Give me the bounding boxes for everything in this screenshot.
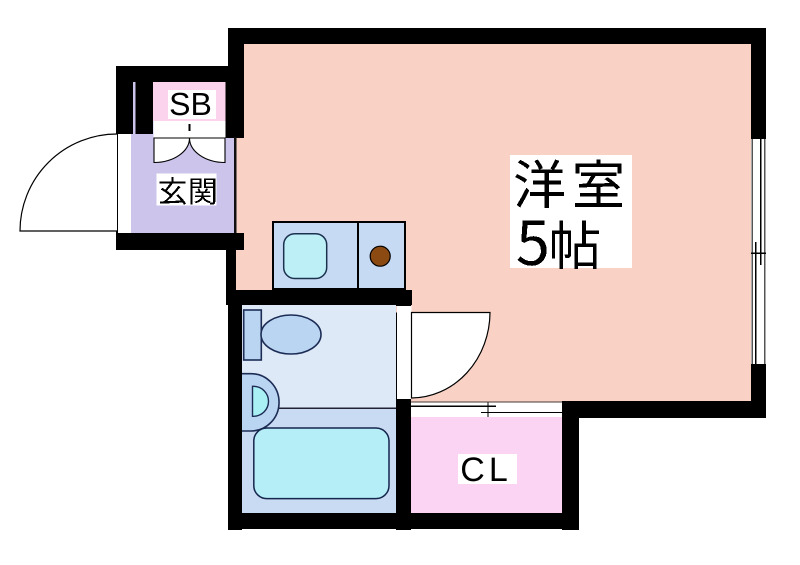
svg-text:CL: CL bbox=[460, 451, 511, 489]
svg-text:SB: SB bbox=[169, 86, 212, 122]
